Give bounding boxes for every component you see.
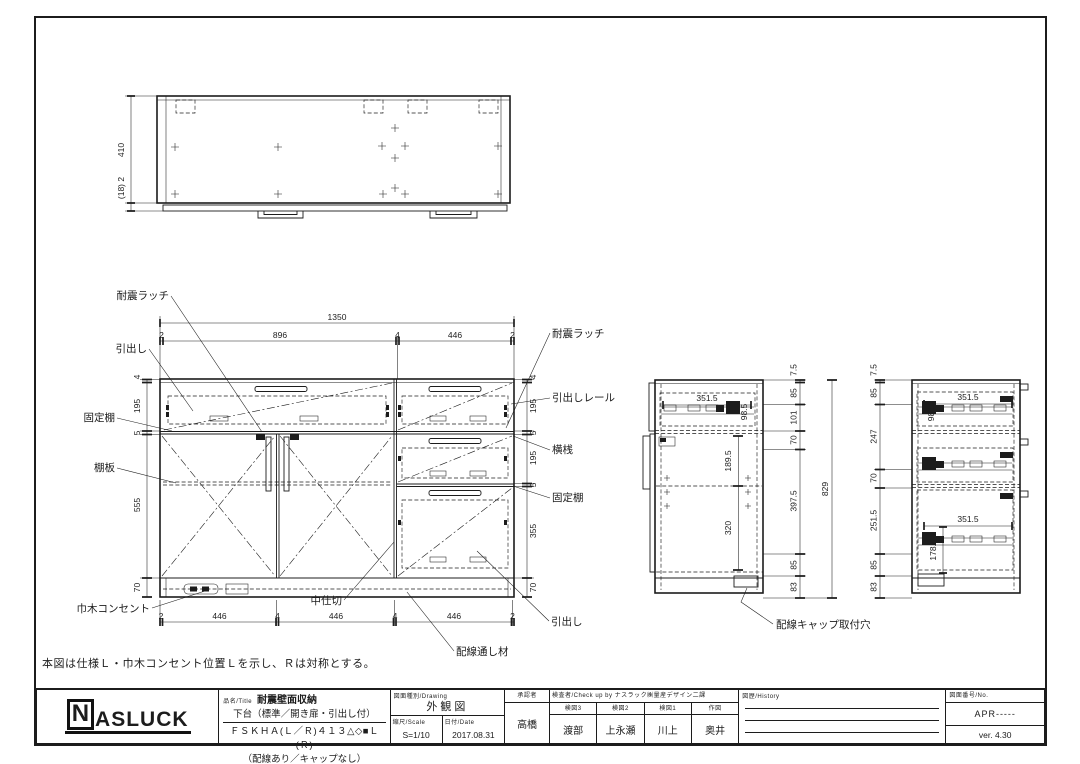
product-option: （配線あり／キャップなし） [223, 751, 385, 764]
dim-s2l-4: 251.5 [869, 510, 879, 532]
date-cell: 日付/Date 2017.08.31 [443, 716, 505, 743]
checker-column: 検図2 上永瀬 [597, 703, 644, 743]
product-name-cell: 品名/Title 耐震壁面収納 下台（標準／開き扉・引出し付） ＦＳＫＨＡ(Ｌ／… [219, 690, 390, 743]
product-name: 耐震壁面収納 [257, 691, 317, 706]
dim-s2l-2: 247 [869, 429, 879, 443]
label-taishin-latch-right: 耐震ラッチ [552, 327, 605, 340]
dim-shelf-offset: 189.5 [723, 450, 733, 472]
label-drawer-right: 引出し [551, 615, 583, 628]
date-label: 日付/Date [445, 717, 475, 726]
checkers-cell: 検査者/Check up by ナスラック㈱量産デザイン二課 検図3 渡部 検図… [550, 690, 739, 743]
label-taishin-latch-left: 耐震ラッチ [117, 289, 170, 302]
scale-cell: 縮尺/Scale S=1/10 [391, 716, 443, 743]
handle-notch [430, 211, 477, 218]
dim-top-0: 2 [159, 330, 164, 340]
label-drawer-rail: 引出しレール [552, 391, 615, 404]
dim-top-3: 446 [448, 330, 462, 340]
drawing-type-value: 外観図 [391, 698, 505, 714]
top-view: 410 (18) 2 [116, 96, 510, 218]
product-subname: 下台（標準／開き扉・引出し付） [223, 706, 385, 723]
dim-top-2: 4 [395, 330, 400, 340]
dim-s1r-2: 101 [789, 410, 799, 424]
drawing-type-cell: 図面種別/Drawing 外観図 縮尺/Scale S=1/10 日付/Date… [391, 690, 506, 743]
door-swing-lines [162, 383, 512, 576]
front-elevation-view: 1350 2 896 4 446 2 4 195 5 555 70 4 195 … [77, 289, 616, 658]
dim-s1r-1: 85 [789, 388, 799, 398]
mount-hole [364, 100, 383, 113]
drawer-handle [429, 439, 481, 444]
handle-notch [258, 211, 303, 218]
dim-s2l-3: 70 [869, 473, 879, 483]
drawer-handle [429, 387, 481, 392]
checker-column: 検図1 川上 [645, 703, 692, 743]
dim-left-1: 195 [132, 399, 142, 413]
door-hinge-hardware [290, 434, 299, 440]
drawing-frame [35, 17, 1046, 745]
drawer-rail [664, 405, 718, 411]
dim-rail-width-top: 351.5 [957, 392, 979, 402]
dim-topview-height: 410 [116, 143, 126, 157]
checker-label: 検図1 [645, 703, 691, 715]
dim-bottom-6: 2 [510, 611, 515, 621]
checker-column: 検図3 渡部 [550, 703, 597, 743]
label-wiring-pass: 配線通し材 [456, 645, 509, 658]
history-rule [745, 732, 939, 733]
label-fixed-shelf-left: 固定棚 [84, 411, 116, 424]
dim-s1r-5: 85 [789, 560, 799, 570]
drawer-handle [429, 491, 481, 496]
dim-top-4: 2 [510, 330, 515, 340]
drawing-sheet: 410 (18) 2 [0, 0, 1080, 764]
dim-s1r-4: 397.5 [789, 490, 799, 512]
dim-bottom-3: 446 [329, 611, 343, 621]
checker-label: 検図2 [597, 703, 643, 715]
dim-bottom-0: 2 [159, 611, 164, 621]
dim-s2l-5: 85 [869, 560, 879, 570]
dim-right-4: 5 [528, 482, 538, 487]
mount-hole [176, 100, 195, 113]
drawer-rail-marks [210, 416, 486, 562]
date-value: 2017.08.31 [443, 730, 505, 740]
product-code: ＦＳＫＨＡ(Ｌ／Ｒ)４１３△◇■Ｌ(Ｒ) [223, 723, 385, 751]
dim-right-5: 355 [528, 524, 538, 538]
dim-top-1: 896 [273, 330, 287, 340]
label-baseboard-outlet: 巾木コンセント [77, 602, 151, 615]
checker-label: 検図3 [550, 703, 596, 715]
drawer-edge-tab [1020, 439, 1028, 445]
drawing-note: 本図は仕様Ｌ・巾木コンセント位置Ｌを示し、Ｒは対称とする。 [42, 655, 375, 671]
label-shelf-board: 棚板 [94, 461, 115, 474]
checker-name: 奥井 [692, 715, 738, 743]
side-view-door: 351.5 98.5 189.5 320 7.5 85 101 70 397.5… [643, 364, 871, 631]
dim-bottom-2: 4 [275, 611, 280, 621]
history-rule [745, 720, 939, 721]
dim-bottom-1: 446 [212, 611, 226, 621]
dim-left-3: 555 [132, 498, 142, 512]
dim-right-6: 70 [528, 583, 538, 593]
screw-marks [171, 124, 502, 198]
dim-s1r-0: 7.5 [789, 364, 799, 376]
door-handle [284, 437, 289, 491]
drawer-edge-tab [1020, 491, 1028, 497]
version-value: ver. 4.30 [946, 726, 1044, 743]
number-label: 図面番号/No. [946, 690, 1044, 702]
history-label: 図歴/History [742, 691, 779, 700]
dim-bottom-offset: 320 [723, 521, 733, 535]
drawing-number-cell: 図面番号/No. APR----- ver. 4.30 [946, 690, 1044, 743]
approver-label: 承認者 [505, 690, 549, 703]
checker-label: 作図 [692, 703, 738, 715]
approver-name: 高橋 [505, 703, 549, 743]
label-wiring-cap-hole: 配線キャップ取付穴 [776, 618, 871, 631]
drawer-front-profile [649, 383, 655, 431]
label-cross-rail: 横桟 [552, 443, 573, 456]
history-cell: 図歴/History [739, 690, 946, 743]
cad-drawing: 410 (18) 2 [0, 0, 1080, 764]
dim-s1r-6: 83 [789, 582, 799, 592]
logo-letter-n: N [67, 699, 94, 730]
dim-rail-height-bottom: 178.5 [928, 539, 938, 561]
drawer-edge-tab [1020, 384, 1028, 390]
door-handle-profile [643, 436, 650, 489]
history-rule [745, 708, 939, 709]
scale-value: S=1/10 [391, 730, 442, 740]
dim-bottom-5: 446 [447, 611, 461, 621]
dim-right-2: 5 [528, 430, 538, 435]
dim-bottom-4: 4 [393, 611, 398, 621]
side-view-drawers: 351.5 98.5 351.5 178.5 7.5 85 247 70 251… [869, 364, 1029, 598]
dim-rail-width: 351.5 [696, 393, 718, 403]
check-header: 検査者/Check up by ナスラック㈱量産デザイン二課 [550, 690, 738, 703]
mount-hole [479, 100, 498, 113]
checker-column: 作図 奥井 [692, 703, 738, 743]
dim-s1r-3: 70 [789, 435, 799, 445]
title-block: NASLUCK 品名/Title 耐震壁面収納 下台（標準／開き扉・引出し付） … [35, 688, 1046, 745]
mount-hole [408, 100, 427, 113]
dim-rail-height: 98.5 [739, 403, 749, 420]
dim-left-4: 70 [132, 583, 142, 593]
label-fixed-shelf-right: 固定棚 [552, 491, 584, 504]
checker-name: 上永瀬 [597, 715, 643, 743]
dim-rail-width-bottom: 351.5 [957, 514, 979, 524]
dim-s2l-0: 7.5 [869, 364, 879, 376]
door-hinge-hardware [256, 434, 265, 440]
dim-left-0: 4 [132, 374, 142, 379]
wiring-cap-hole-back [918, 574, 944, 586]
dim-rail-height-top: 98.5 [926, 404, 936, 421]
shelf-pin-marks [664, 475, 751, 509]
approver-cell: 承認者 高橋 [505, 690, 550, 743]
label-drawer-left: 引出し [116, 342, 148, 355]
dim-s2l-6: 83 [869, 582, 879, 592]
dim-total-height: 829 [820, 482, 830, 496]
dim-total-width: 1350 [328, 312, 347, 322]
dim-left-2: 5 [132, 430, 142, 435]
door-handle [266, 437, 271, 491]
name-label: 品名/Title [223, 696, 252, 705]
number-value: APR----- [946, 702, 1044, 726]
scale-label: 縮尺/Scale [393, 717, 426, 726]
logo-wordmark: ASLUCK [95, 709, 189, 730]
company-logo: NASLUCK [37, 690, 219, 743]
dim-s2l-1: 85 [869, 388, 879, 398]
dim-topview-thickness: (18) 2 [116, 177, 126, 199]
checker-name: 渡部 [550, 715, 596, 743]
checker-name: 川上 [645, 715, 691, 743]
drawer-handle [255, 387, 307, 392]
dim-right-3: 195 [528, 451, 538, 465]
label-center-divider: 中仕切 [311, 594, 343, 607]
